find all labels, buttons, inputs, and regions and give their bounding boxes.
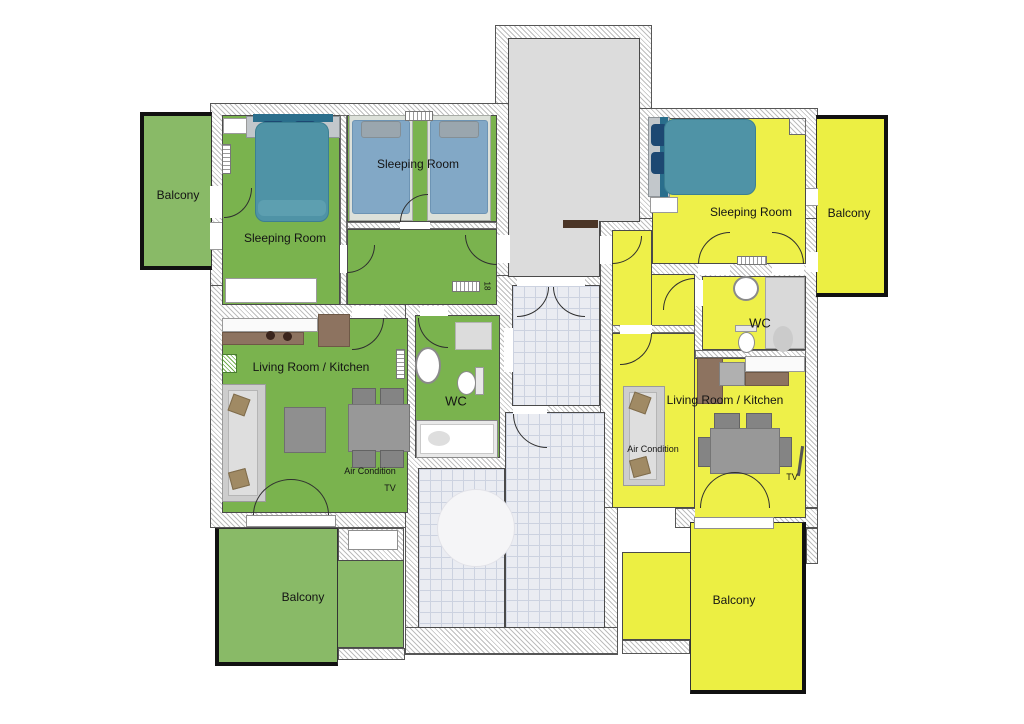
green-dining-table — [348, 404, 410, 452]
wall-right-balcony-side — [806, 528, 818, 564]
yellow-bedroom-window1 — [806, 188, 818, 206]
yellow-bedroom-dresser — [650, 197, 678, 213]
green-kitchen-burner-2 — [283, 332, 292, 341]
left-bottom-balcony-ext — [338, 560, 404, 648]
yellow-wc-door-opening — [695, 280, 703, 306]
yellow-dining-chair-4 — [779, 437, 792, 467]
right-living-room-label: Living Room / Kitchen — [667, 393, 784, 407]
yellow-dining-table — [710, 428, 780, 474]
green-kitchen-corner-block — [318, 314, 350, 347]
right-tv-label: TV — [786, 472, 798, 482]
left-air-condition-label: Air Condition — [344, 466, 396, 476]
yellow-double-bed-body — [664, 119, 756, 195]
green-bedroom2-door-opening — [400, 222, 430, 229]
green-wc-bathtub-drain — [428, 431, 450, 446]
green-corridor-radiator — [452, 281, 480, 292]
green-corridor-entry-opening — [497, 235, 510, 263]
left-sleeping-room-1-label: Sleeping Room — [244, 231, 326, 245]
left-sleeping-room-2-label: Sleeping Room — [377, 157, 459, 171]
green-wc-door-opening — [420, 306, 448, 316]
green-bedroom2-radiator — [405, 111, 433, 121]
yellow-balcony-door-opening — [806, 252, 818, 272]
stairwell-floor-upper — [508, 38, 640, 222]
yellow-wc-sink — [733, 276, 759, 301]
hall-floor-right — [505, 412, 605, 628]
yellow-bedroom-door1-opening — [698, 264, 730, 275]
green-bedroom1-window — [210, 222, 222, 250]
left-top-balcony-label: Balcony — [157, 188, 200, 202]
right-bottom-balcony-ext — [622, 552, 690, 640]
left-bottom-balcony-label: Balcony — [282, 590, 325, 604]
vestibule-side-opening — [504, 328, 513, 372]
wall-left-balcony-under — [338, 648, 405, 660]
yellow-wc-shower-drain — [773, 326, 793, 352]
wall-between-green-bedrooms — [340, 115, 347, 305]
green-living-vent — [222, 354, 237, 373]
green-kitchen-counter-white — [222, 318, 318, 332]
green-bedroom1-wardrobe — [225, 278, 317, 303]
green-coffee-table — [284, 407, 326, 453]
right-top-balcony-label: Balcony — [828, 206, 871, 220]
yellow-bedroom-chimney — [789, 118, 806, 135]
green-wc-toilet-tank — [475, 367, 484, 395]
yellow-wc-radiator — [737, 256, 767, 265]
wall-right-balcony-under — [622, 640, 690, 654]
left-living-room-label: Living Room / Kitchen — [253, 360, 370, 374]
right-bottom-balcony-main — [690, 522, 806, 694]
yellow-bedroom-door2-opening — [772, 264, 804, 275]
green-wc-toilet-bowl — [457, 371, 476, 395]
right-sleeping-room-label: Sleeping Room — [710, 205, 792, 219]
wall-hall-bottom-band — [405, 627, 618, 654]
green-bedroom1-shelf — [223, 118, 247, 134]
left-wc-label: WC — [445, 394, 467, 409]
green-double-bed-fold — [258, 200, 326, 216]
entrance-threshold — [563, 220, 598, 228]
green-living-door-opening — [352, 306, 384, 318]
left-corridor-radiator-label: 18 — [483, 282, 492, 291]
green-french-door-sill — [246, 515, 336, 527]
yellow-kitchen-stove — [719, 362, 745, 386]
hall-rug — [437, 489, 515, 567]
vestibule-doors-opening — [517, 277, 585, 286]
green-bedroom1-door-opening — [340, 245, 347, 273]
green-wc-sink — [415, 347, 441, 384]
hall-door-opening — [513, 406, 547, 414]
yellow-kitchen-counter-wood — [745, 372, 789, 386]
yellow-wc-toilet-bowl — [738, 332, 755, 353]
right-air-condition-label: Air Condition — [627, 444, 679, 454]
green-single-bed2-pillow — [439, 121, 479, 138]
green-single-bed1-pillow — [361, 121, 401, 138]
yellow-entrance-opening — [600, 236, 612, 264]
right-bottom-balcony-label: Balcony — [713, 593, 756, 607]
green-kitchen-burner-1 — [266, 331, 275, 340]
floor-plan: Balcony Sleeping Room Sleeping Room Livi… — [0, 0, 1024, 724]
green-wc-cabinet — [455, 322, 492, 350]
yellow-kitchen-counter-white — [745, 356, 805, 372]
yellow-french-door-sill — [694, 517, 774, 529]
left-tv-label: TV — [384, 483, 396, 493]
green-balcony-notch-sill — [348, 530, 398, 550]
right-wc-label: WC — [749, 316, 771, 331]
green-bedroom1-radiator — [222, 144, 231, 174]
green-living-radiator — [396, 349, 405, 379]
green-balcony-door-opening — [210, 186, 222, 218]
stairwell-floor-lower — [508, 221, 600, 277]
